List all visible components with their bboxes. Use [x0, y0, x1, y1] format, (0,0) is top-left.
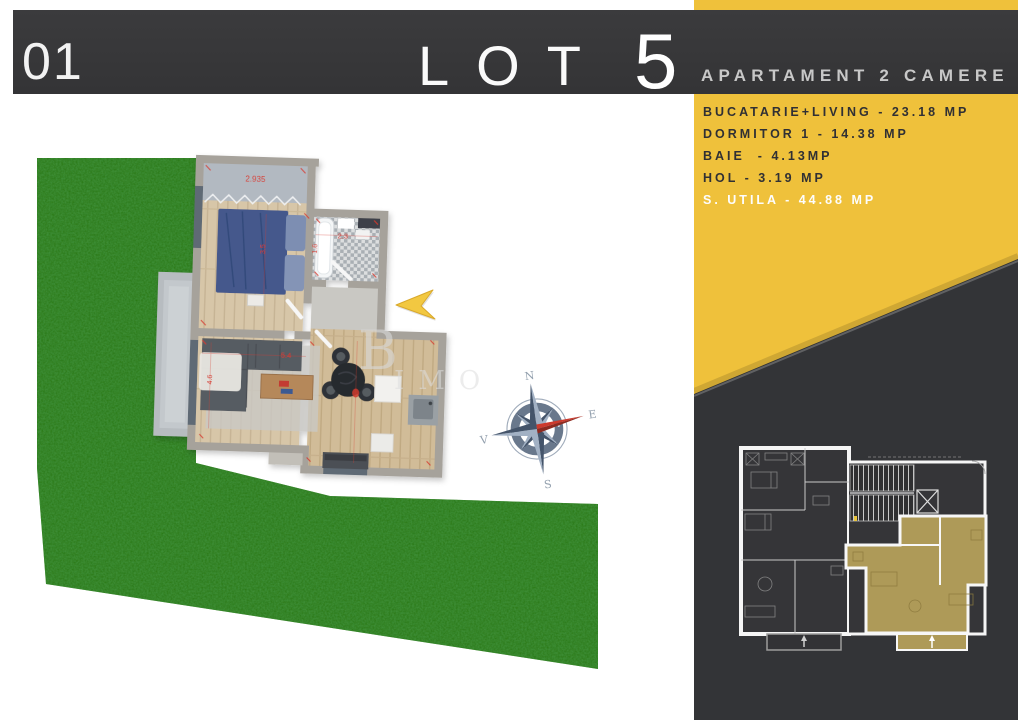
kitchen-unit [371, 434, 394, 453]
building-level-plan [733, 444, 995, 662]
page-number: 01 [22, 36, 84, 88]
brochure-page: 2.935 2.3 1.6 3.5 5.4 4.6 B IMO [0, 0, 1018, 720]
entrance-step [268, 452, 302, 465]
watermark-initial: B [358, 319, 398, 382]
kitchen-island [322, 452, 368, 469]
stair-core [850, 465, 914, 521]
bath-towels-2 [356, 230, 370, 239]
bath-towels [338, 218, 354, 228]
room-line-bathroom: BAIE - 4.13MP [703, 145, 1015, 167]
info-panel: BUCATARIE+LIVING - 23.18 MP DORMITOR 1 -… [694, 94, 1018, 720]
apartment-floorplan: 2.935 2.3 1.6 3.5 5.4 4.6 [152, 154, 452, 478]
apartment-subtitle: APARTAMENT 2 CAMERE [701, 66, 1009, 86]
lot-number: 5 [634, 22, 677, 100]
compass-north-label: N [524, 369, 536, 383]
room-line-hall: HOL - 3.19 MP [703, 167, 1015, 189]
compass-east-label: E [588, 408, 598, 422]
compass-west-label: V [478, 433, 490, 447]
watermark-letters: IMO [394, 366, 494, 396]
room-line-kitchen-living: BUCATARIE+LIVING - 23.18 MP [703, 101, 1015, 123]
left-porch [767, 634, 841, 650]
site-plan-illustration: 2.935 2.3 1.6 3.5 5.4 4.6 B IMO [0, 93, 694, 720]
kitchen-counter [408, 395, 439, 426]
sofa-throw [199, 352, 242, 391]
room-line-bedroom: DORMITOR 1 - 14.38 MP [703, 123, 1015, 145]
pointer-arrow [396, 290, 436, 321]
lot-title: LOT [418, 38, 608, 94]
room-area-list: BUCATARIE+LIVING - 23.18 MP DORMITOR 1 -… [703, 101, 1015, 211]
dim-living-width: 5.4 [281, 351, 292, 360]
bedside-cart [247, 295, 263, 306]
room-line-useful-area: S. UTILA - 44.88 MP [703, 189, 1015, 211]
dim-living-height: 4.6 [207, 374, 214, 384]
highlighted-porch [897, 634, 967, 650]
dim-wardrobe: 2.935 [245, 174, 266, 184]
accent-strip [694, 0, 1018, 10]
dim-bed-width: 3.5 [260, 244, 267, 254]
compass-south-label: S [543, 478, 552, 492]
dim-bath-height: 1.6 [312, 244, 319, 254]
dim-bath-width: 2.3 [337, 231, 348, 240]
